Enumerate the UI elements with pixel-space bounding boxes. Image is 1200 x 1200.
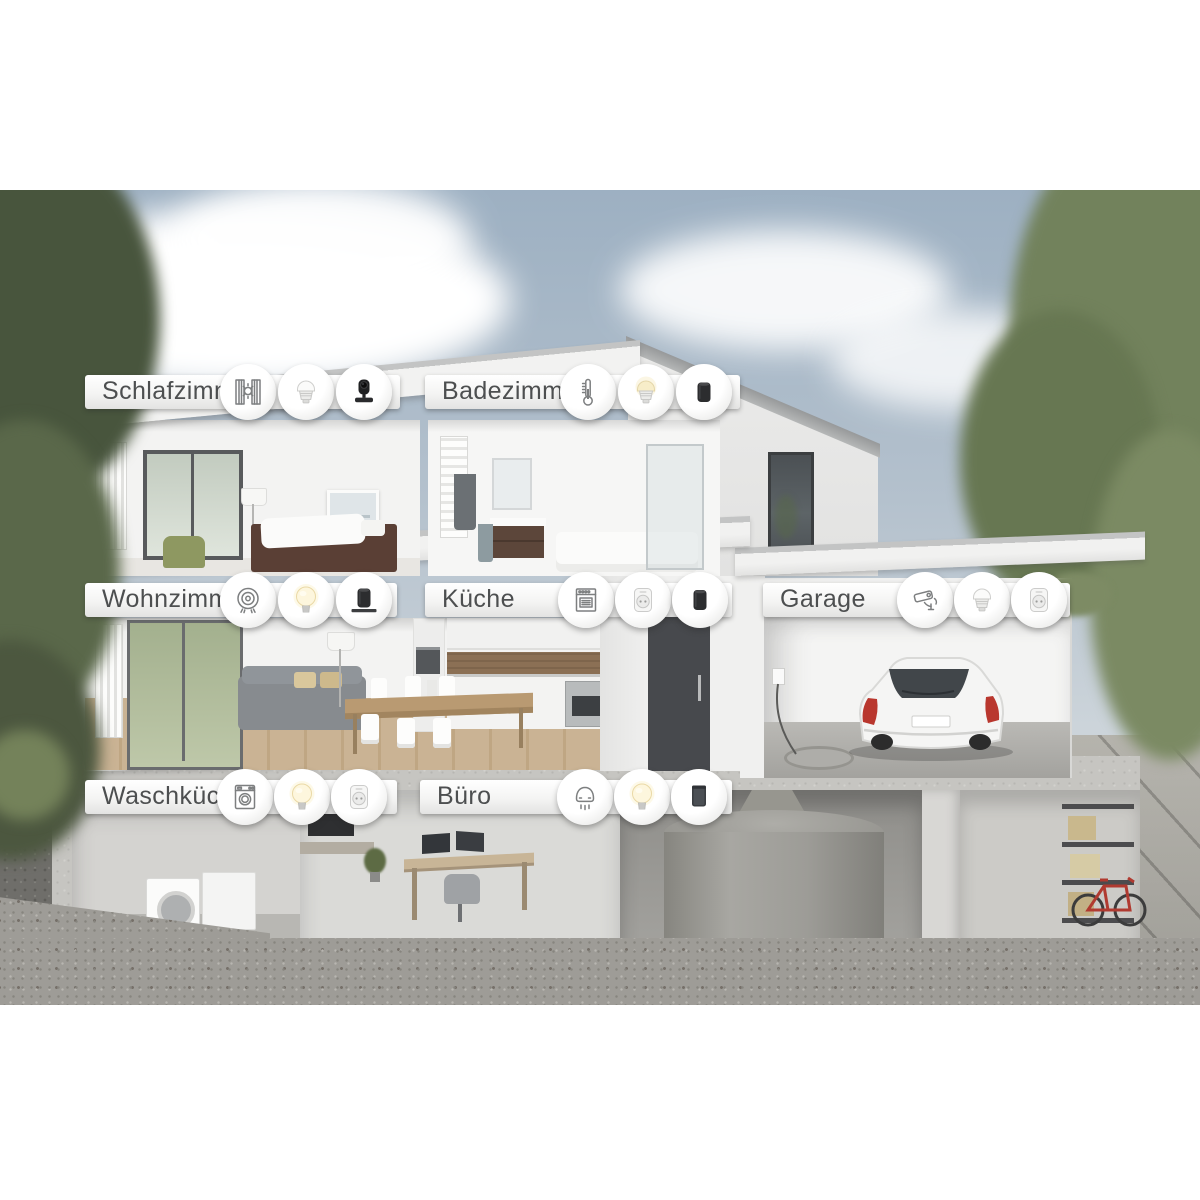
vase-flowers <box>427 680 437 696</box>
storage-box <box>1068 816 1096 840</box>
duvet <box>260 513 365 548</box>
e27-bulb-lit-icon <box>614 769 670 825</box>
garage-interior <box>764 612 1072 778</box>
plant-pot <box>370 872 380 882</box>
cabinet <box>202 872 256 930</box>
e27-bulb-lit-icon <box>278 572 334 628</box>
dining-chair <box>433 718 451 748</box>
dining-chair <box>397 718 415 748</box>
monitor <box>422 833 450 854</box>
gu10-spot-bulb-white-icon <box>954 572 1010 628</box>
smoke-detector-icon <box>557 769 613 825</box>
security-camera-icon <box>897 572 953 628</box>
bed <box>251 524 397 572</box>
monitor <box>456 831 484 852</box>
desk <box>404 853 534 870</box>
desk-leg <box>412 868 417 920</box>
room-schlafzimmer <box>75 420 420 576</box>
floor-lamp-stem <box>339 649 341 707</box>
room-badezimmer <box>428 420 720 576</box>
speaker-black-cylinder-icon <box>672 572 728 628</box>
floor-lamp-shade <box>241 488 267 506</box>
desk-leg <box>522 862 527 910</box>
vanity-top <box>490 518 546 526</box>
sideboard <box>300 842 374 854</box>
charging-cable <box>772 682 812 762</box>
sliding-glass-door <box>127 620 243 770</box>
storage-room <box>960 790 1140 940</box>
vanity <box>492 526 544 558</box>
office-chair-post <box>458 904 462 922</box>
smart-plug-white-icon <box>331 769 387 825</box>
cushion <box>294 672 316 688</box>
pillow <box>361 520 385 536</box>
outdoor-scene: Schlafzimmer <box>0 190 1200 1005</box>
floor-lamp-shade <box>327 632 355 651</box>
smart-camera-black-icon <box>336 364 392 420</box>
shower-glass <box>646 444 704 570</box>
gravel-foreground <box>0 938 1200 1005</box>
speaker-black-box-icon <box>671 769 727 825</box>
oven-icon <box>558 572 614 628</box>
office-chair <box>444 874 480 904</box>
speaker-black-cylinder-icon <box>676 364 732 420</box>
gu10-spot-bulb-warm-icon <box>618 364 674 420</box>
window-blinds-sun-icon <box>220 364 276 420</box>
table-leg <box>519 708 523 748</box>
towels-dark <box>454 474 476 530</box>
smart-plug-white-icon <box>1011 572 1067 628</box>
door-handle <box>698 675 701 701</box>
robot-vacuum-icon <box>220 572 276 628</box>
red-bicycle <box>1070 860 1148 930</box>
dining-chair <box>361 714 379 744</box>
armchair <box>163 536 205 568</box>
smart-home-illustration: { "rooms": [ {"label": "Schlafzimmer", "… <box>0 0 1200 1200</box>
car <box>842 640 1020 766</box>
mirror <box>492 458 532 510</box>
plant <box>364 848 386 874</box>
table-leg <box>353 714 357 754</box>
towels-teal <box>478 524 493 562</box>
built-in-oven <box>416 647 440 674</box>
smart-plug-white-icon <box>615 572 671 628</box>
gu10-spot-bulb-white-icon <box>278 364 334 420</box>
washing-machine-icon <box>217 769 273 825</box>
e27-bulb-lit-icon <box>274 769 330 825</box>
entry-door <box>648 613 710 771</box>
thermometer-icon <box>560 364 616 420</box>
speaker-black-cylinder-shelf-icon <box>336 572 392 628</box>
room-wohnzimmer-kueche <box>75 618 640 770</box>
